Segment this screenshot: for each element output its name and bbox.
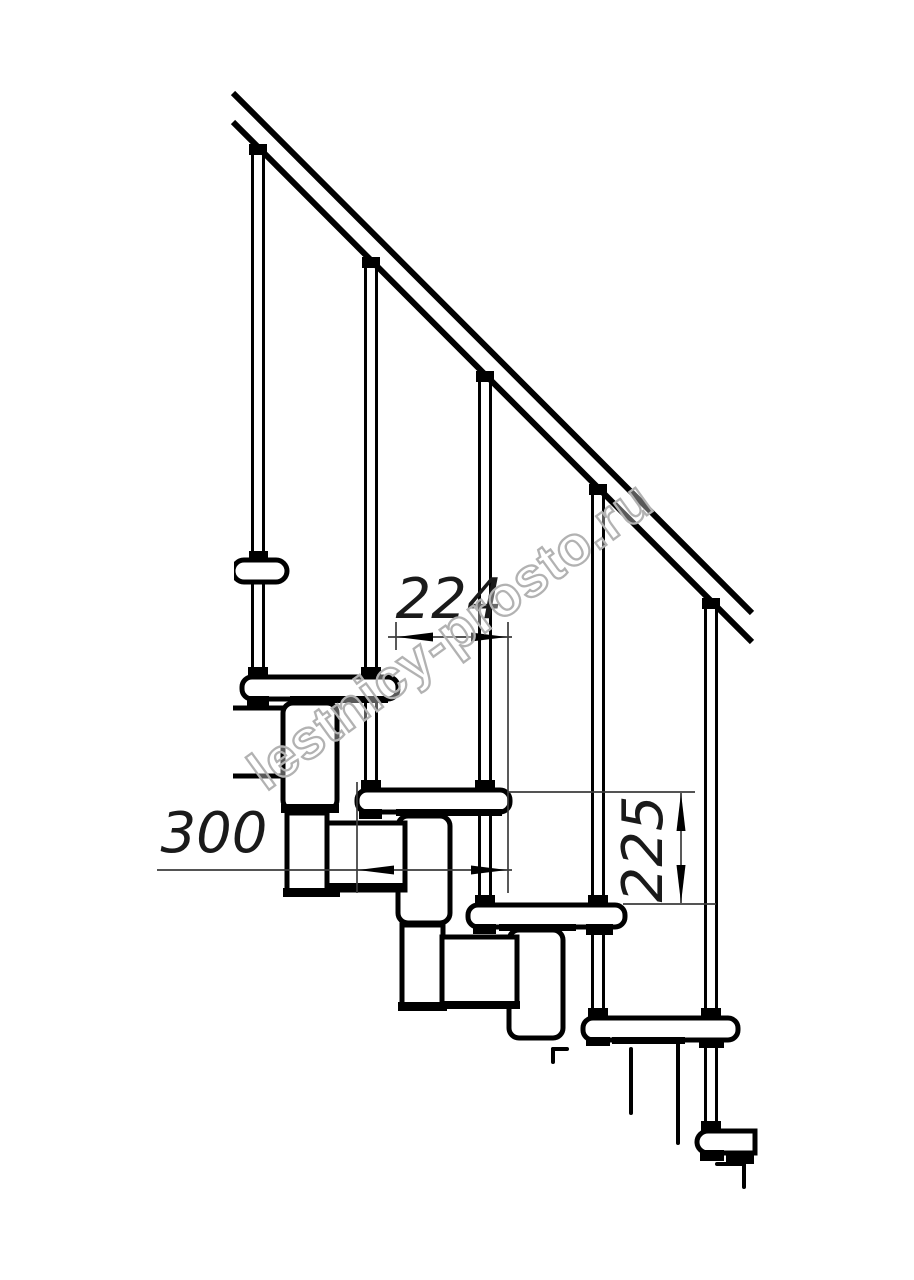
landing-bracket (224, 551, 287, 588)
dimension-label-225: 225 (611, 796, 676, 903)
module-box-wide-2 (327, 823, 405, 890)
bracket-connector (249, 551, 268, 562)
dimension-label-300: 300 (161, 801, 268, 866)
staircase-drawing: 224 300 225 lestnicy-prosto.ru (0, 0, 914, 1280)
tread-3 (468, 905, 625, 927)
rail-cap-2 (362, 257, 380, 268)
watermark-text: lestnicy-prosto.ru (237, 468, 664, 802)
baluster-3 (480, 377, 491, 931)
tread-5 (697, 1131, 755, 1153)
tread-2 (357, 790, 510, 812)
module-box-wide-3 (442, 937, 517, 1005)
module-box-narrow-2 (402, 925, 443, 1006)
baluster-2 (366, 263, 377, 818)
technical-drawing-page: 224 300 225 lestnicy-prosto.ru (0, 0, 914, 1280)
rail-cap-5 (702, 598, 720, 609)
rail-cap-1 (249, 144, 267, 155)
baluster-5 (706, 604, 717, 1158)
baluster-1 (253, 150, 264, 704)
baluster-4 (593, 490, 604, 1044)
rail-cap-3 (476, 371, 494, 382)
module-box-narrow-1 (287, 813, 327, 892)
tread-4 (583, 1018, 738, 1040)
handrail (233, 93, 752, 642)
